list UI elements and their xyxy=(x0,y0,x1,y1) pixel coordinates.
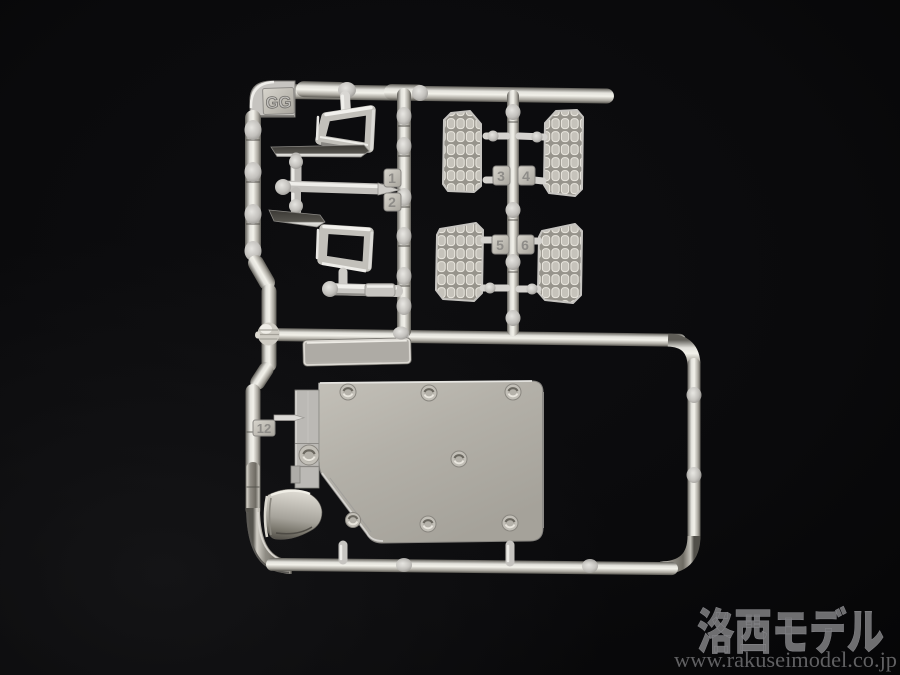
svg-text:6: 6 xyxy=(521,237,529,253)
svg-text:4: 4 xyxy=(522,168,530,184)
svg-text:3: 3 xyxy=(497,168,505,184)
svg-text:www.rakuseimodel.co.jp: www.rakuseimodel.co.jp xyxy=(674,647,897,672)
svg-text:2: 2 xyxy=(388,194,396,210)
svg-text:5: 5 xyxy=(496,237,504,253)
svg-text:1: 1 xyxy=(388,170,396,186)
svg-text:12: 12 xyxy=(257,421,271,436)
svg-text:GG: GG xyxy=(265,94,291,113)
